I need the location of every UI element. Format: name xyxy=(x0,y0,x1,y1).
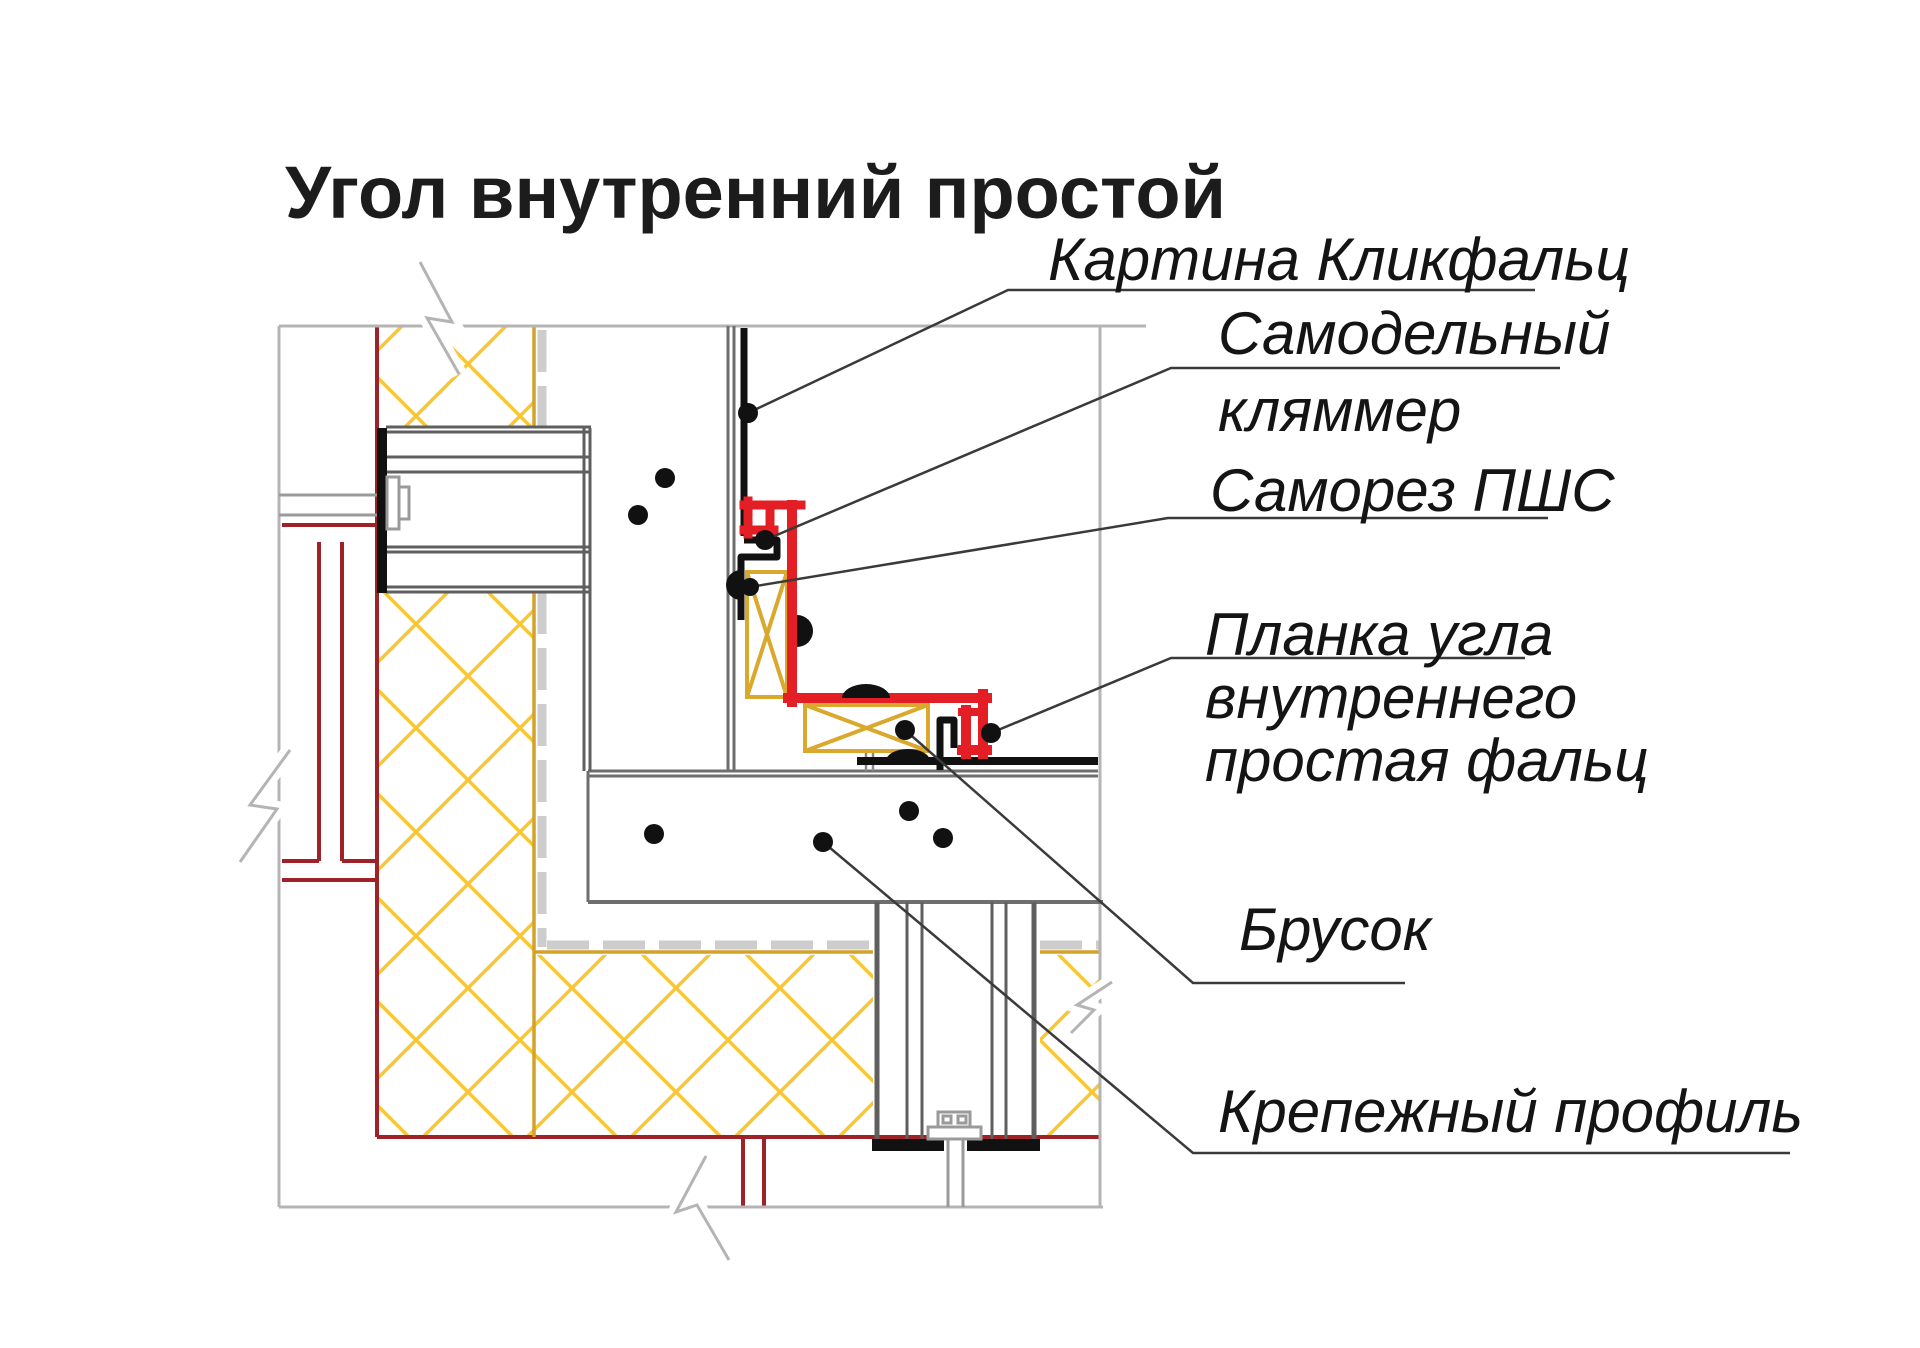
label-clamp-line1: Самодельный xyxy=(1218,299,1610,368)
label-clickfalz-panel: Картина Кликфальц xyxy=(1048,225,1630,294)
fastening-bracket-bottom xyxy=(872,902,1040,1207)
label-clamp-line2: кляммер xyxy=(1218,376,1461,445)
page-title: Угол внутренний простой xyxy=(285,150,1226,235)
bracket-bolt xyxy=(387,477,409,529)
leader-dots xyxy=(738,403,1001,852)
windproof-membrane-dashed xyxy=(542,330,1100,947)
insulation-wall-left xyxy=(377,326,534,1137)
label-screw: Саморез ПШС xyxy=(1210,456,1615,525)
label-corner-plank-line2: внутреннего xyxy=(1205,663,1577,732)
label-corner-plank-line1: Планка угла xyxy=(1205,600,1553,669)
bracket-bolt-bottom xyxy=(928,1112,981,1139)
corner-plank-red xyxy=(744,501,987,754)
diagram-page: Угол внутренний простой Картина Кликфаль… xyxy=(0,0,1920,1348)
label-corner-plank-line3: простая фальц xyxy=(1205,726,1649,795)
insulation-wall-bottom xyxy=(534,955,1101,1137)
label-wood-bar: Брусок xyxy=(1239,895,1431,964)
leader-screw xyxy=(750,518,1548,587)
label-fastening-profile: Крепежный профиль xyxy=(1218,1077,1803,1146)
